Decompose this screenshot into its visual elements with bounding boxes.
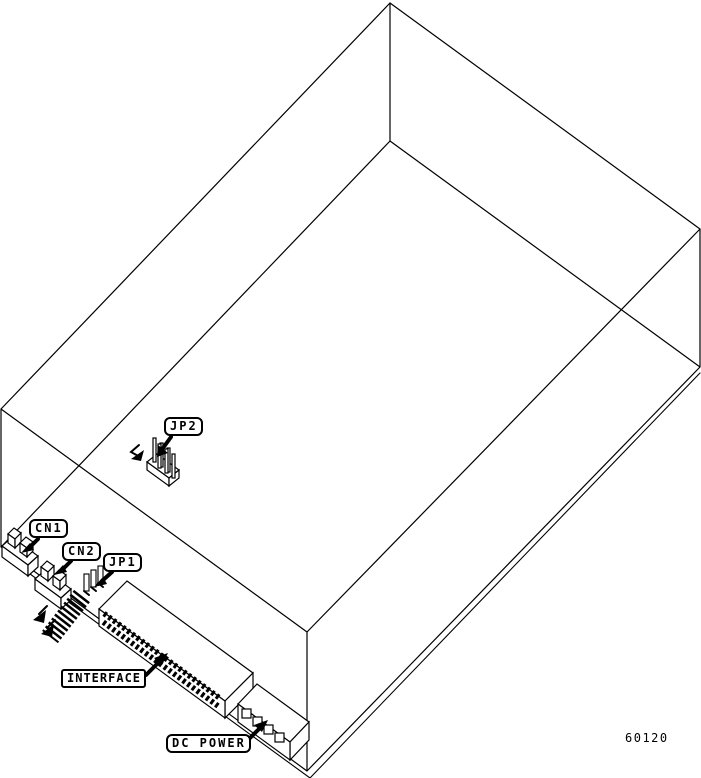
- interface-label: INTERFACE: [61, 669, 146, 688]
- dc-power-label: DC POWER: [166, 734, 251, 753]
- diagram-canvas: [0, 0, 701, 778]
- cn2-label: CN2: [62, 542, 101, 561]
- cable-direction-arrows: [33, 606, 55, 637]
- cn2-leader: [54, 561, 71, 575]
- interface-connector: [99, 581, 253, 718]
- jp2-direction-arrow: [131, 445, 144, 461]
- part-number: 60120: [625, 732, 669, 744]
- jp2-label: JP2: [164, 417, 203, 436]
- chassis-outline: [1, 3, 700, 778]
- cn1-label: CN1: [29, 519, 68, 538]
- jp1-label: JP1: [103, 553, 142, 572]
- figure-canvas: JP2 CN1 CN2 JP1 INTERFACE DC POWER 60120: [0, 0, 701, 778]
